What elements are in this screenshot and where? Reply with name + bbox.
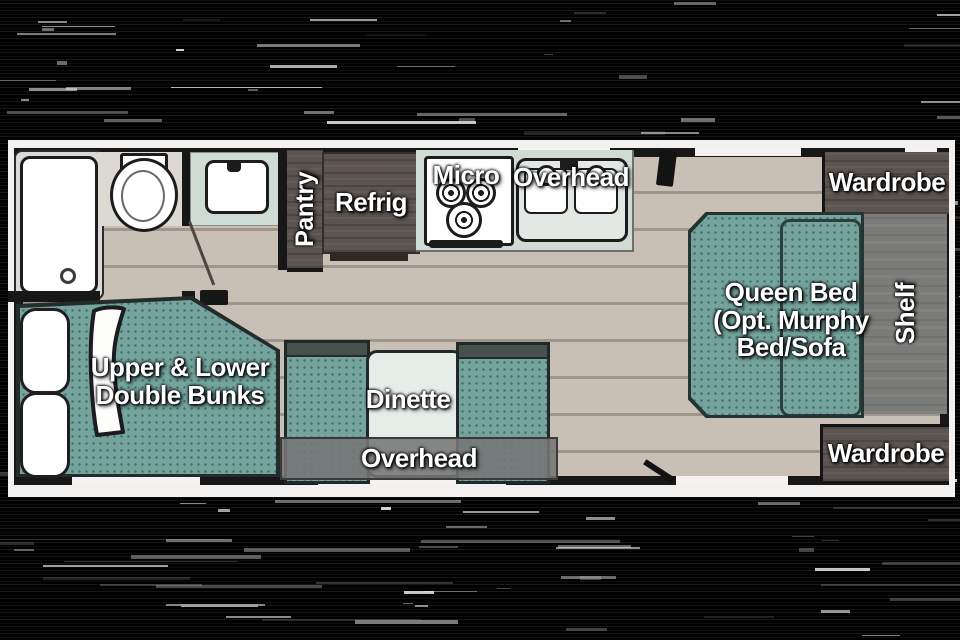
kitchen-overhead-label: Overhead: [504, 164, 638, 192]
refrig-label: Refrig: [335, 189, 407, 217]
window-bottom-bedroom: [676, 476, 788, 485]
dinette-label: Dinette: [308, 386, 508, 414]
wardrobe-top: Wardrobe: [822, 152, 949, 217]
queen-bed-label: Queen Bed (Opt. Murphy Bed/Sofa: [684, 279, 898, 362]
refrigerator-base: [330, 252, 408, 261]
bathroom-wall: [182, 150, 190, 226]
wardrobe-bottom: Wardrobe: [820, 424, 949, 481]
oven-handle: [429, 240, 503, 248]
burner: [446, 202, 482, 238]
pantry-label: Pantry: [292, 172, 319, 247]
refrigerator: Refrig: [322, 152, 420, 254]
bathroom-bottom-wall: [8, 291, 100, 302]
dinette-overhead-cabinet: Overhead: [280, 437, 558, 480]
pantry-cabinet: Pantry: [287, 150, 323, 272]
window-bottom-bunks: [72, 476, 200, 485]
shower-tub: [20, 156, 98, 294]
bathroom-faucet: [227, 160, 241, 172]
micro-label: Micro: [414, 162, 518, 190]
rv-floor-plan: Pantry Refrig Micro Overhead Wardrobe Sh…: [8, 140, 955, 497]
bunks-label: Upper & Lower Double Bunks: [50, 354, 310, 409]
pantry-wall: [278, 150, 287, 270]
toilet-seat: [121, 170, 165, 222]
door-latch-mark: [200, 290, 228, 305]
wardrobe-top-label: Wardrobe: [829, 169, 945, 197]
shower-drain: [60, 268, 76, 284]
dinette-overhead-label: Overhead: [361, 445, 477, 473]
window-top-bedroom: [695, 148, 801, 156]
wardrobe-bottom-label: Wardrobe: [828, 440, 944, 468]
